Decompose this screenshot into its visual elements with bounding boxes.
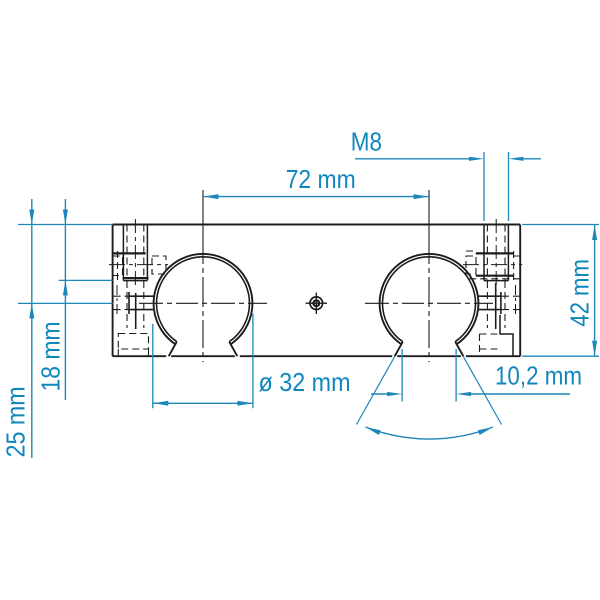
svg-text:10,2 mm: 10,2 mm <box>495 360 582 390</box>
svg-text:42 mm: 42 mm <box>565 259 595 327</box>
svg-text:ø 32 mm: ø 32 mm <box>259 367 351 397</box>
svg-text:25 mm: 25 mm <box>1 386 31 457</box>
svg-text:18 mm: 18 mm <box>36 322 66 392</box>
svg-text:M8: M8 <box>351 127 382 157</box>
svg-text:72 mm: 72 mm <box>286 164 356 194</box>
